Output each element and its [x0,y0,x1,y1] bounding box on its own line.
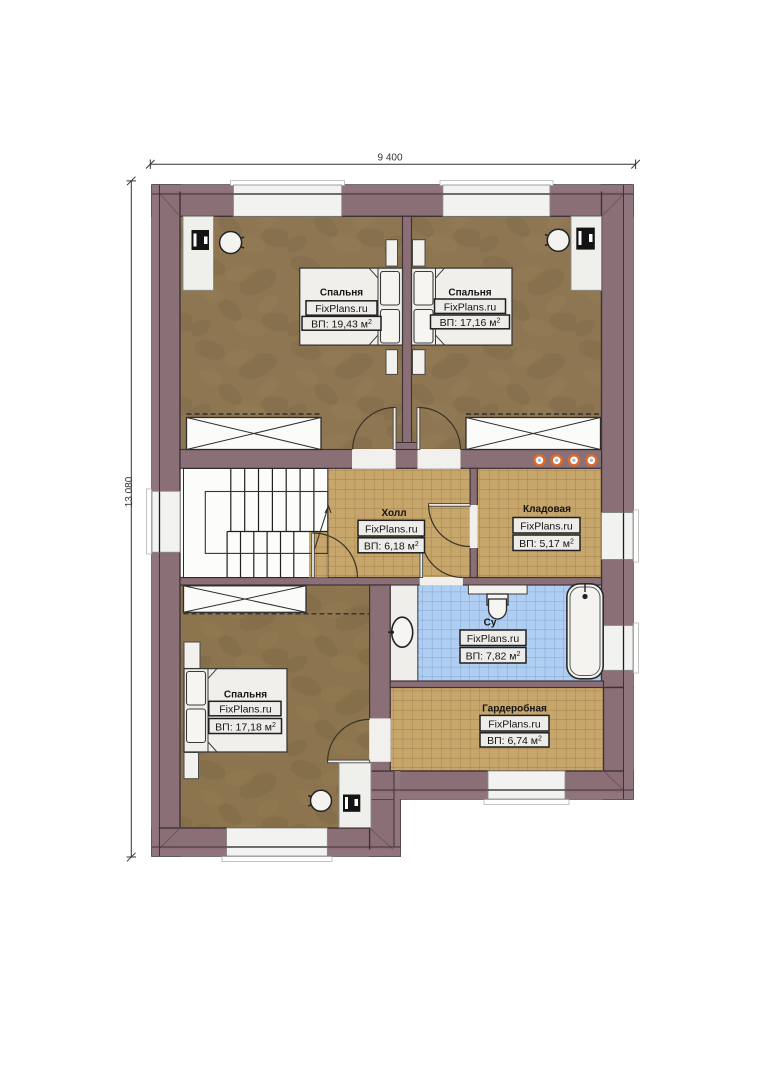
svg-text:Спальня: Спальня [448,288,491,299]
svg-text:ВП: 17,16 м2: ВП: 17,16 м2 [440,317,501,329]
svg-text:ВП: 19,43 м2: ВП: 19,43 м2 [311,319,372,331]
svg-text:FixPlans.ru: FixPlans.ru [488,718,541,730]
svg-text:FixPlans.ru: FixPlans.ru [365,523,418,535]
svg-text:ВП: 6,18 м2: ВП: 6,18 м2 [364,541,419,553]
svg-text:FixPlans.ru: FixPlans.ru [219,704,272,716]
svg-text:ВП: 17,18 м2: ВП: 17,18 м2 [215,721,276,733]
svg-text:FixPlans.ru: FixPlans.ru [315,303,368,315]
svg-text:Спальня: Спальня [320,288,363,299]
svg-text:ВП: 6,74 м2: ВП: 6,74 м2 [487,735,542,747]
svg-text:Гардеробная: Гардеробная [482,703,547,715]
svg-text:Спальня: Спальня [224,690,267,701]
svg-text:ВП: 7,82 м2: ВП: 7,82 м2 [466,650,521,662]
svg-text:Кладовая: Кладовая [523,504,571,515]
svg-text:Су: Су [484,618,497,629]
svg-text:FixPlans.ru: FixPlans.ru [520,520,573,532]
svg-text:13 080: 13 080 [124,476,135,507]
svg-text:FixPlans.ru: FixPlans.ru [444,301,497,313]
svg-text:9 400: 9 400 [377,153,402,164]
svg-text:ВП: 5,17 м2: ВП: 5,17 м2 [519,538,574,550]
svg-text:FixPlans.ru: FixPlans.ru [467,633,520,645]
svg-text:Холл: Холл [381,508,406,519]
